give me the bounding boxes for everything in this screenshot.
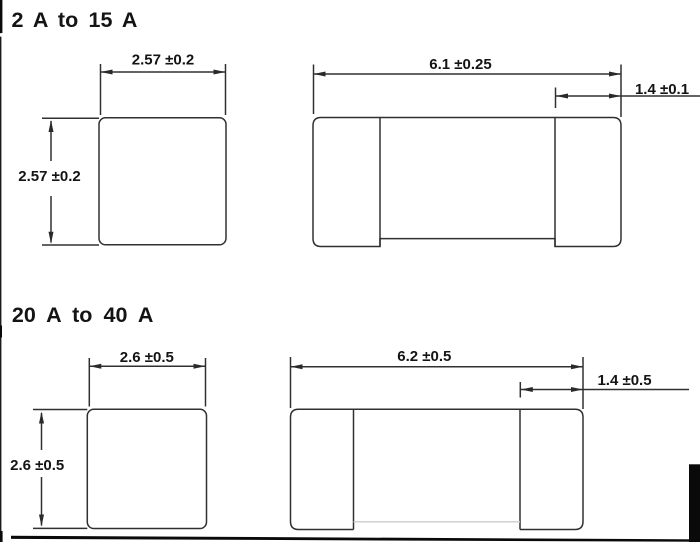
svg-text:2.6 ±0.5: 2.6 ±0.5 (10, 457, 64, 474)
svg-text:20 A to 40 A: 20 A to 40 A (12, 303, 153, 327)
svg-text:6.2 ±0.5: 6.2 ±0.5 (397, 348, 451, 365)
svg-text:2.57 ±0.2: 2.57 ±0.2 (132, 52, 194, 69)
svg-text:2.57 ±0.2: 2.57 ±0.2 (18, 168, 80, 185)
svg-text:1.4 ±0.1: 1.4 ±0.1 (635, 81, 689, 98)
svg-text:2.6 ±0.5: 2.6 ±0.5 (120, 349, 174, 366)
svg-text:2 A to 15 A: 2 A to 15 A (12, 8, 138, 32)
svg-text:1.4 ±0.5: 1.4 ±0.5 (597, 372, 651, 389)
svg-text:6.1 ±0.25: 6.1 ±0.25 (429, 56, 491, 73)
